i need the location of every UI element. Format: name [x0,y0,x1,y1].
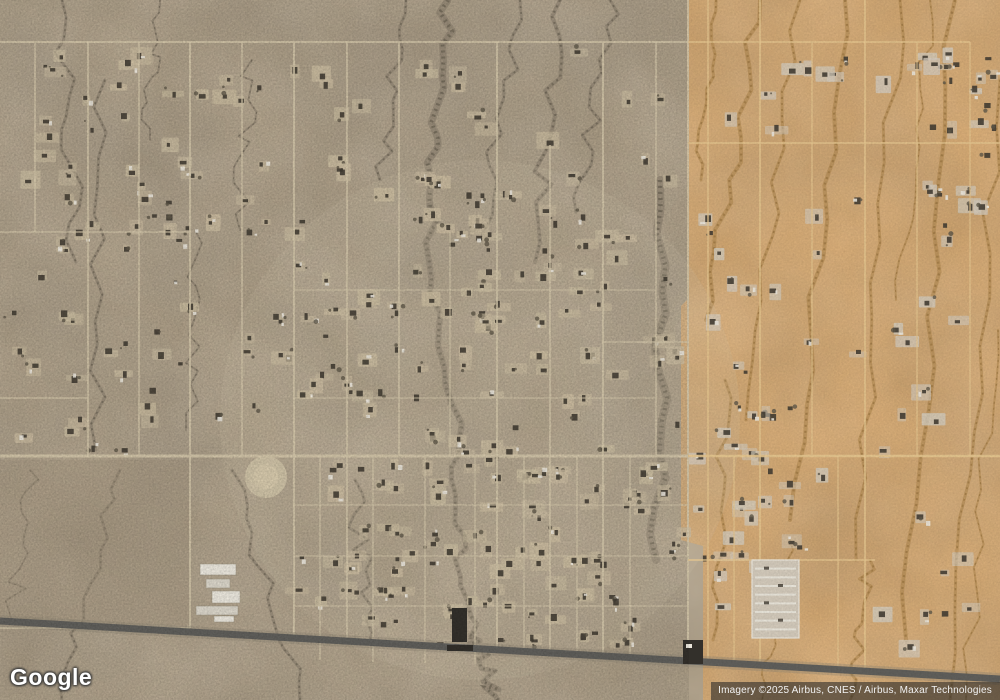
map-attribution: Imagery ©2025 Airbus, CNES / Airbus, Max… [711,682,1000,700]
map-viewport[interactable]: Google Imagery ©2025 Airbus, CNES / Airb… [0,0,1000,700]
grain-orange-rect [689,0,1000,700]
satellite-imagery[interactable] [0,0,1000,700]
google-logo[interactable]: Google [10,664,92,691]
imagery-grain [0,0,1000,700]
grain-orange-zone [689,0,1000,700]
grain-gray-zone [0,0,689,700]
